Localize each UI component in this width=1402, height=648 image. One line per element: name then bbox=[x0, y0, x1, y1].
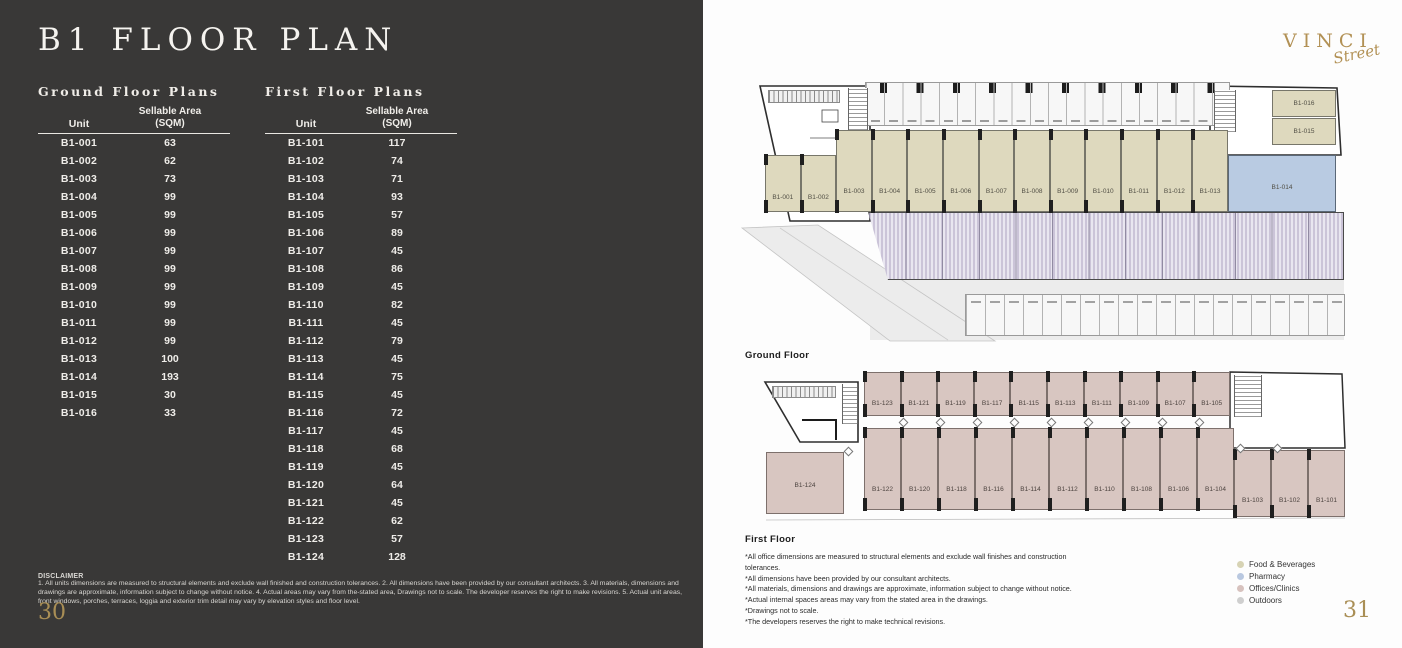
stairs bbox=[842, 384, 858, 424]
parking-row-bottom bbox=[965, 294, 1345, 336]
legend-dot-icon bbox=[1237, 573, 1244, 580]
area-cell: 99 bbox=[120, 335, 220, 347]
unit-cell: B1-016 bbox=[38, 407, 120, 419]
area-cell: 63 bbox=[120, 137, 220, 149]
first-table-rows: B1-101117B1-10274B1-10371B1-10493B1-1055… bbox=[265, 134, 457, 566]
area-cell: 57 bbox=[347, 209, 447, 221]
area-cell: 99 bbox=[120, 299, 220, 311]
unit-cell: B1-009 bbox=[38, 281, 120, 293]
unit-cell: B1-103 bbox=[265, 173, 347, 185]
table-row: B1-11545 bbox=[265, 386, 457, 404]
area-cell: 99 bbox=[120, 209, 220, 221]
unit-cell: B1-114 bbox=[265, 371, 347, 383]
unit-label: B1-010 bbox=[1086, 188, 1120, 195]
unit-cell: B1-116 bbox=[265, 407, 347, 419]
table-row: B1-00262 bbox=[38, 152, 230, 170]
table-row: B1-10274 bbox=[265, 152, 457, 170]
area-cell: 45 bbox=[347, 461, 447, 473]
unit-b1-104: B1-104 bbox=[1197, 428, 1234, 510]
page-number-right: 31 bbox=[1343, 598, 1371, 623]
unit-b1-015: B1-015 bbox=[1272, 118, 1336, 145]
unit-cell: B1-110 bbox=[265, 299, 347, 311]
unit-b1-119: B1-119 bbox=[937, 372, 974, 416]
table-row: B1-11145 bbox=[265, 314, 457, 332]
unit-cell: B1-108 bbox=[265, 263, 347, 275]
unit-label: B1-103 bbox=[1235, 497, 1270, 504]
unit-b1-001: B1-001 bbox=[765, 155, 801, 212]
table-row: B1-11868 bbox=[265, 440, 457, 458]
unit-label: B1-116 bbox=[976, 486, 1011, 493]
table-row: B1-10945 bbox=[265, 278, 457, 296]
brochure-spread: B1 FLOOR PLAN Ground Floor Plans First F… bbox=[0, 0, 1402, 648]
unit-label: B1-006 bbox=[944, 188, 978, 195]
area-column-header: Sellable Area (SQM) bbox=[347, 106, 447, 130]
unit-label: B1-115 bbox=[1011, 400, 1046, 407]
unit-b1-113: B1-113 bbox=[1047, 372, 1084, 416]
legend-dot-icon bbox=[1237, 561, 1244, 568]
note-line: *All materials, dimensions and drawings … bbox=[745, 584, 1090, 595]
legend: Food & BeveragesPharmacyOffices/ClinicsO… bbox=[1237, 558, 1315, 606]
parking-row-top bbox=[865, 82, 1230, 126]
unit-b1-111: B1-111 bbox=[1084, 372, 1121, 416]
table-row: B1-12145 bbox=[265, 494, 457, 512]
table-row: B1-11945 bbox=[265, 458, 457, 476]
unit-cell: B1-123 bbox=[265, 533, 347, 545]
unit-b1-010: B1-010 bbox=[1085, 130, 1121, 212]
area-cell: 117 bbox=[347, 137, 447, 149]
unit-label: B1-009 bbox=[1051, 188, 1085, 195]
disclaimer-title: DISCLAIMER bbox=[38, 573, 686, 580]
unit-label: B1-119 bbox=[938, 400, 973, 407]
unit-b1-107: B1-107 bbox=[1157, 372, 1194, 416]
unit-label: B1-007 bbox=[980, 188, 1014, 195]
unit-b1-115: B1-115 bbox=[1010, 372, 1047, 416]
area-cell: 128 bbox=[347, 551, 447, 563]
unit-label: B1-118 bbox=[939, 486, 974, 493]
unit-label: B1-113 bbox=[1048, 400, 1083, 407]
area-cell: 99 bbox=[120, 191, 220, 203]
unit-cell: B1-124 bbox=[265, 551, 347, 563]
unit-label: B1-123 bbox=[865, 400, 900, 407]
unit-cell: B1-101 bbox=[265, 137, 347, 149]
table-row: B1-12262 bbox=[265, 512, 457, 530]
arcade-canopy bbox=[868, 212, 1344, 280]
unit-b1-108: B1-108 bbox=[1123, 428, 1160, 510]
table-row: B1-12357 bbox=[265, 530, 457, 548]
table-row: B1-00499 bbox=[38, 188, 230, 206]
area-cell: 74 bbox=[347, 155, 447, 167]
legend-item: Offices/Clinics bbox=[1237, 582, 1315, 594]
table-row: B1-014193 bbox=[38, 368, 230, 386]
unit-b1-124: B1-124 bbox=[766, 452, 844, 514]
unit-column-header: Unit bbox=[265, 118, 347, 130]
area-cell: 45 bbox=[347, 281, 447, 293]
unit-b1-118: B1-118 bbox=[938, 428, 975, 510]
first-floor-table: Unit Sellable Area (SQM) B1-101117B1-102… bbox=[265, 104, 457, 566]
note-line: *The developers reserves the right to ma… bbox=[745, 617, 1090, 628]
unit-b1-016: B1-016 bbox=[1272, 90, 1336, 117]
vinci-street-logo: VINCI Street bbox=[1283, 30, 1398, 80]
table-row: B1-11475 bbox=[265, 368, 457, 386]
table-row: B1-00373 bbox=[38, 170, 230, 188]
ground-floor-plan: B1-001B1-002B1-003B1-004B1-005B1-006B1-0… bbox=[740, 78, 1350, 346]
unit-label: B1-011 bbox=[1122, 188, 1156, 195]
unit-label: B1-124 bbox=[767, 482, 843, 489]
table-row: B1-11279 bbox=[265, 332, 457, 350]
unit-cell: B1-002 bbox=[38, 155, 120, 167]
unit-b1-004: B1-004 bbox=[872, 130, 908, 212]
unit-label: B1-105 bbox=[1194, 400, 1229, 407]
area-cell: 99 bbox=[120, 263, 220, 275]
bike-racks bbox=[772, 386, 836, 398]
unit-cell: B1-105 bbox=[265, 209, 347, 221]
ground-floor-table: Unit Sellable Area (SQM) B1-00163B1-0026… bbox=[38, 104, 230, 422]
unit-column-header: Unit bbox=[38, 118, 120, 130]
area-cell: 45 bbox=[347, 317, 447, 329]
stairs bbox=[848, 88, 868, 134]
unit-b1-007: B1-007 bbox=[979, 130, 1015, 212]
unit-cell: B1-104 bbox=[265, 191, 347, 203]
unit-b1-014: B1-014 bbox=[1228, 155, 1336, 212]
unit-b1-112: B1-112 bbox=[1049, 428, 1086, 510]
unit-cell: B1-014 bbox=[38, 371, 120, 383]
disclaimer: DISCLAIMER 1. All units dimensions are m… bbox=[38, 573, 686, 607]
table-row: B1-00799 bbox=[38, 242, 230, 260]
unit-label: B1-016 bbox=[1273, 100, 1335, 107]
legend-item: Pharmacy bbox=[1237, 570, 1315, 582]
unit-label: B1-015 bbox=[1273, 128, 1335, 135]
unit-b1-012: B1-012 bbox=[1157, 130, 1193, 212]
legend-label: Food & Beverages bbox=[1249, 560, 1315, 569]
unit-label: B1-122 bbox=[865, 486, 900, 493]
unit-cell: B1-015 bbox=[38, 389, 120, 401]
unit-label: B1-008 bbox=[1015, 188, 1049, 195]
unit-label: B1-003 bbox=[837, 188, 871, 195]
table-row: B1-10371 bbox=[265, 170, 457, 188]
area-cell: 99 bbox=[120, 227, 220, 239]
table-row: B1-11082 bbox=[265, 296, 457, 314]
table-header: Unit Sellable Area (SQM) bbox=[265, 104, 457, 134]
note-line: *All office dimensions are measured to s… bbox=[745, 552, 1090, 574]
disclaimer-text: 1. All units dimensions are measured to … bbox=[38, 580, 686, 607]
unit-cell: B1-107 bbox=[265, 245, 347, 257]
area-cell: 62 bbox=[120, 155, 220, 167]
right-page: VINCI Street B1 bbox=[703, 0, 1402, 648]
table-row: B1-10745 bbox=[265, 242, 457, 260]
unit-label: B1-012 bbox=[1158, 188, 1192, 195]
unit-cell: B1-111 bbox=[265, 317, 347, 329]
note-line: *Actual internal spaces areas may vary f… bbox=[745, 595, 1090, 606]
table-row: B1-01633 bbox=[38, 404, 230, 422]
unit-b1-102: B1-102 bbox=[1271, 450, 1308, 517]
left-page: B1 FLOOR PLAN Ground Floor Plans First F… bbox=[0, 0, 703, 648]
unit-cell: B1-006 bbox=[38, 227, 120, 239]
page-title: B1 FLOOR PLAN bbox=[38, 22, 398, 58]
unit-cell: B1-012 bbox=[38, 335, 120, 347]
unit-label: B1-014 bbox=[1229, 184, 1335, 191]
unit-b1-103: B1-103 bbox=[1234, 450, 1271, 517]
area-cell: 57 bbox=[347, 533, 447, 545]
unit-cell: B1-112 bbox=[265, 335, 347, 347]
note-line: *Drawings not to scale. bbox=[745, 606, 1090, 617]
table-row: B1-00699 bbox=[38, 224, 230, 242]
stairs bbox=[1214, 90, 1236, 132]
table-row: B1-11345 bbox=[265, 350, 457, 368]
area-cell: 99 bbox=[120, 317, 220, 329]
unit-cell: B1-003 bbox=[38, 173, 120, 185]
unit-b1-123: B1-123 bbox=[864, 372, 901, 416]
unit-b1-006: B1-006 bbox=[943, 130, 979, 212]
unit-label: B1-114 bbox=[1013, 486, 1048, 493]
area-cell: 99 bbox=[120, 245, 220, 257]
page-number-left: 30 bbox=[38, 600, 66, 625]
unit-b1-109: B1-109 bbox=[1120, 372, 1157, 416]
unit-label: B1-104 bbox=[1198, 486, 1233, 493]
plan-notes: *All office dimensions are measured to s… bbox=[745, 552, 1090, 628]
unit-cell: B1-120 bbox=[265, 479, 347, 491]
unit-b1-002: B1-002 bbox=[801, 155, 837, 212]
unit-b1-105: B1-105 bbox=[1193, 372, 1230, 416]
table-row: B1-11745 bbox=[265, 422, 457, 440]
unit-b1-114: B1-114 bbox=[1012, 428, 1049, 510]
first-floor-label: First Floor bbox=[745, 534, 795, 545]
unit-b1-116: B1-116 bbox=[975, 428, 1012, 510]
table-row: B1-10886 bbox=[265, 260, 457, 278]
unit-b1-009: B1-009 bbox=[1050, 130, 1086, 212]
unit-b1-122: B1-122 bbox=[864, 428, 901, 510]
unit-label: B1-013 bbox=[1193, 188, 1227, 195]
unit-label: B1-117 bbox=[975, 400, 1010, 407]
area-cell: 72 bbox=[347, 407, 447, 419]
unit-label: B1-108 bbox=[1124, 486, 1159, 493]
table-row: B1-101117 bbox=[265, 134, 457, 152]
unit-cell: B1-106 bbox=[265, 227, 347, 239]
unit-cell: B1-001 bbox=[38, 137, 120, 149]
unit-cell: B1-005 bbox=[38, 209, 120, 221]
table-row: B1-11672 bbox=[265, 404, 457, 422]
unit-label: B1-002 bbox=[802, 194, 836, 201]
table-row: B1-00163 bbox=[38, 134, 230, 152]
unit-b1-003: B1-003 bbox=[836, 130, 872, 212]
area-cell: 64 bbox=[347, 479, 447, 491]
unit-cell: B1-004 bbox=[38, 191, 120, 203]
ground-table-heading: Ground Floor Plans bbox=[38, 84, 219, 99]
unit-cell: B1-122 bbox=[265, 515, 347, 527]
area-cell: 45 bbox=[347, 497, 447, 509]
table-row: B1-12064 bbox=[265, 476, 457, 494]
unit-cell: B1-109 bbox=[265, 281, 347, 293]
unit-cell: B1-115 bbox=[265, 389, 347, 401]
unit-b1-117: B1-117 bbox=[974, 372, 1011, 416]
unit-label: B1-111 bbox=[1085, 400, 1120, 407]
unit-label: B1-004 bbox=[873, 188, 907, 195]
table-row: B1-10493 bbox=[265, 188, 457, 206]
area-cell: 193 bbox=[120, 371, 220, 383]
area-cell: 71 bbox=[347, 173, 447, 185]
unit-label: B1-102 bbox=[1272, 497, 1307, 504]
area-cell: 100 bbox=[120, 353, 220, 365]
unit-b1-011: B1-011 bbox=[1121, 130, 1157, 212]
first-table-heading: First Floor Plans bbox=[265, 84, 424, 99]
unit-label: B1-112 bbox=[1050, 486, 1085, 493]
ground-table-rows: B1-00163B1-00262B1-00373B1-00499B1-00599… bbox=[38, 134, 230, 422]
area-cell: 45 bbox=[347, 425, 447, 437]
unit-cell: B1-102 bbox=[265, 155, 347, 167]
unit-b1-013: B1-013 bbox=[1192, 130, 1228, 212]
table-row: B1-01199 bbox=[38, 314, 230, 332]
area-cell: 45 bbox=[347, 353, 447, 365]
area-cell: 82 bbox=[347, 299, 447, 311]
unit-cell: B1-011 bbox=[38, 317, 120, 329]
unit-label: B1-110 bbox=[1087, 486, 1122, 493]
unit-label: B1-107 bbox=[1158, 400, 1193, 407]
area-cell: 79 bbox=[347, 335, 447, 347]
table-row: B1-124128 bbox=[265, 548, 457, 566]
area-cell: 93 bbox=[347, 191, 447, 203]
table-row: B1-01299 bbox=[38, 332, 230, 350]
unit-b1-101: B1-101 bbox=[1308, 450, 1345, 517]
unit-cell: B1-118 bbox=[265, 443, 347, 455]
unit-b1-106: B1-106 bbox=[1160, 428, 1197, 510]
unit-cell: B1-121 bbox=[265, 497, 347, 509]
legend-item: Food & Beverages bbox=[1237, 558, 1315, 570]
table-row: B1-013100 bbox=[38, 350, 230, 368]
table-row: B1-00599 bbox=[38, 206, 230, 224]
legend-label: Offices/Clinics bbox=[1249, 584, 1300, 593]
table-row: B1-00999 bbox=[38, 278, 230, 296]
area-cell: 33 bbox=[120, 407, 220, 419]
area-cell: 68 bbox=[347, 443, 447, 455]
unit-b1-110: B1-110 bbox=[1086, 428, 1123, 510]
area-cell: 75 bbox=[347, 371, 447, 383]
unit-b1-120: B1-120 bbox=[901, 428, 938, 510]
unit-cell: B1-010 bbox=[38, 299, 120, 311]
table-row: B1-10557 bbox=[265, 206, 457, 224]
unit-b1-005: B1-005 bbox=[907, 130, 943, 212]
unit-cell: B1-117 bbox=[265, 425, 347, 437]
area-cell: 86 bbox=[347, 263, 447, 275]
stairs bbox=[1234, 375, 1262, 417]
area-cell: 99 bbox=[120, 281, 220, 293]
terrace-edge bbox=[766, 518, 1345, 520]
unit-label: B1-109 bbox=[1121, 400, 1156, 407]
legend-item: Outdoors bbox=[1237, 594, 1315, 606]
unit-label: B1-005 bbox=[908, 188, 942, 195]
legend-label: Outdoors bbox=[1249, 596, 1282, 605]
unit-b1-008: B1-008 bbox=[1014, 130, 1050, 212]
legend-dot-icon bbox=[1237, 585, 1244, 592]
unit-label: B1-121 bbox=[902, 400, 937, 407]
ground-floor-label: Ground Floor bbox=[745, 350, 809, 361]
unit-cell: B1-119 bbox=[265, 461, 347, 473]
legend-dot-icon bbox=[1237, 597, 1244, 604]
area-cell: 73 bbox=[120, 173, 220, 185]
first-floor-plan: B1-123B1-121B1-119B1-117B1-115B1-113B1-1… bbox=[740, 362, 1350, 534]
note-line: *All dimensions have been provided by ou… bbox=[745, 574, 1090, 585]
unit-cell: B1-008 bbox=[38, 263, 120, 275]
area-column-header: Sellable Area (SQM) bbox=[120, 106, 220, 130]
legend-label: Pharmacy bbox=[1249, 572, 1285, 581]
table-row: B1-10689 bbox=[265, 224, 457, 242]
unit-cell: B1-013 bbox=[38, 353, 120, 365]
table-row: B1-01099 bbox=[38, 296, 230, 314]
bike-racks bbox=[768, 90, 840, 103]
unit-b1-121: B1-121 bbox=[901, 372, 938, 416]
unit-cell: B1-113 bbox=[265, 353, 347, 365]
unit-label: B1-001 bbox=[766, 194, 800, 201]
unit-label: B1-120 bbox=[902, 486, 937, 493]
unit-label: B1-101 bbox=[1309, 497, 1344, 504]
unit-label: B1-106 bbox=[1161, 486, 1196, 493]
area-cell: 45 bbox=[347, 389, 447, 401]
area-cell: 45 bbox=[347, 245, 447, 257]
table-row: B1-01530 bbox=[38, 386, 230, 404]
area-cell: 30 bbox=[120, 389, 220, 401]
table-header: Unit Sellable Area (SQM) bbox=[38, 104, 230, 134]
unit-cell: B1-007 bbox=[38, 245, 120, 257]
area-cell: 62 bbox=[347, 515, 447, 527]
table-row: B1-00899 bbox=[38, 260, 230, 278]
area-cell: 89 bbox=[347, 227, 447, 239]
